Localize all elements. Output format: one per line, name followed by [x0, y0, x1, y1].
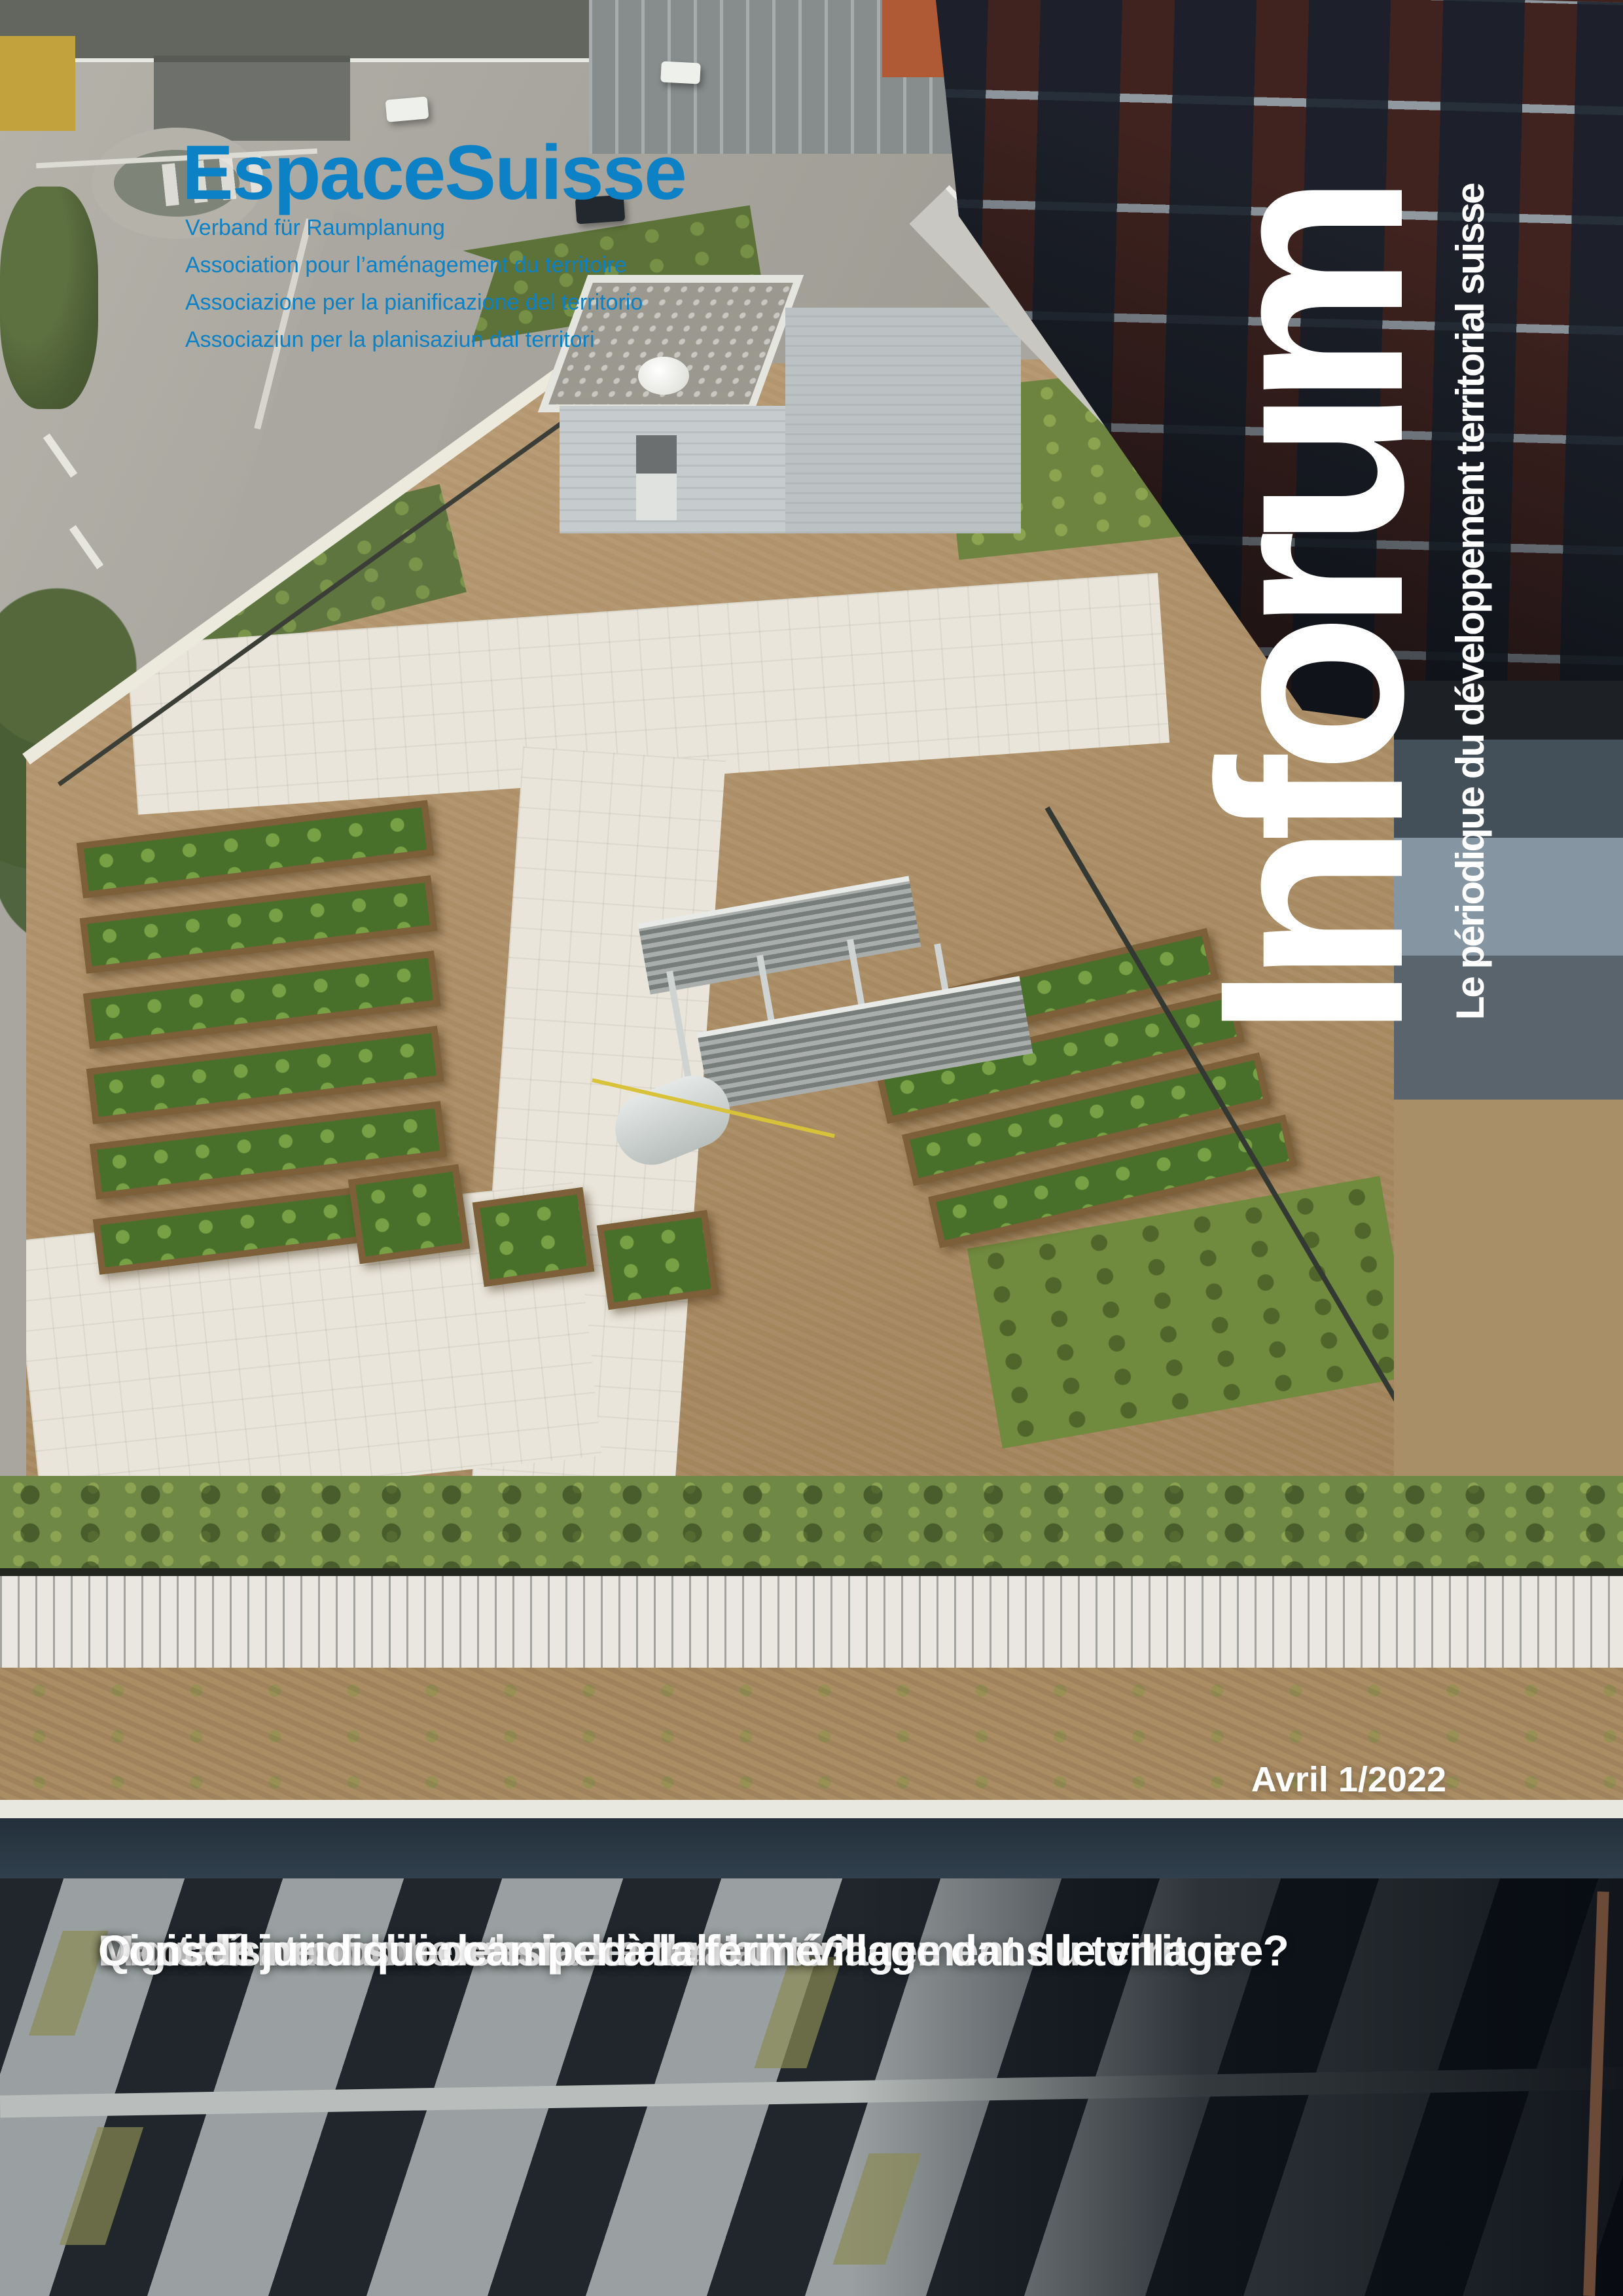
- headline-conseil: Conseil juridique: camper à la ferme: [98, 1915, 819, 1986]
- yellow-wall: [0, 36, 75, 131]
- publisher-logo: EspaceSuisse: [182, 134, 967, 211]
- balustrade: [0, 1576, 1623, 1668]
- planter-box: [348, 1164, 470, 1264]
- facade-shadow: [0, 1818, 1623, 1880]
- penthouse-annex: [785, 308, 1021, 533]
- penthouse-door: [636, 435, 677, 520]
- planter-box: [597, 1210, 719, 1310]
- car: [660, 61, 701, 84]
- road-arrow: [43, 433, 77, 478]
- magazine-title: Inforum: [1171, 190, 1452, 1041]
- tagline-fr: Association pour l’aménagement du territ…: [185, 247, 774, 284]
- rooftop-strip: [0, 0, 615, 62]
- tagline-it: Associazione per la pianificazione del t…: [185, 284, 774, 321]
- trees: [0, 187, 98, 409]
- parapet-edge: [0, 1800, 1623, 1818]
- tagline-de: Verband für Raumplanung: [185, 209, 774, 247]
- issue-date: Avril 1/2022: [982, 1759, 1446, 1800]
- planter-box: [473, 1187, 594, 1287]
- tagline-rm: Associaziun per la planisaziun dal terri…: [185, 321, 774, 359]
- shrub-strip: [0, 1476, 1623, 1574]
- publisher-taglines: Verband für Raumplanung Association pour…: [185, 209, 774, 359]
- magazine-cover: EspaceSuisse Verband für Raumplanung Ass…: [0, 0, 1623, 2296]
- magazine-subtitle: Le périodique du développement territori…: [1447, 164, 1494, 1041]
- road-arrow: [69, 525, 103, 569]
- skylight-dome: [638, 357, 689, 395]
- car: [385, 96, 429, 122]
